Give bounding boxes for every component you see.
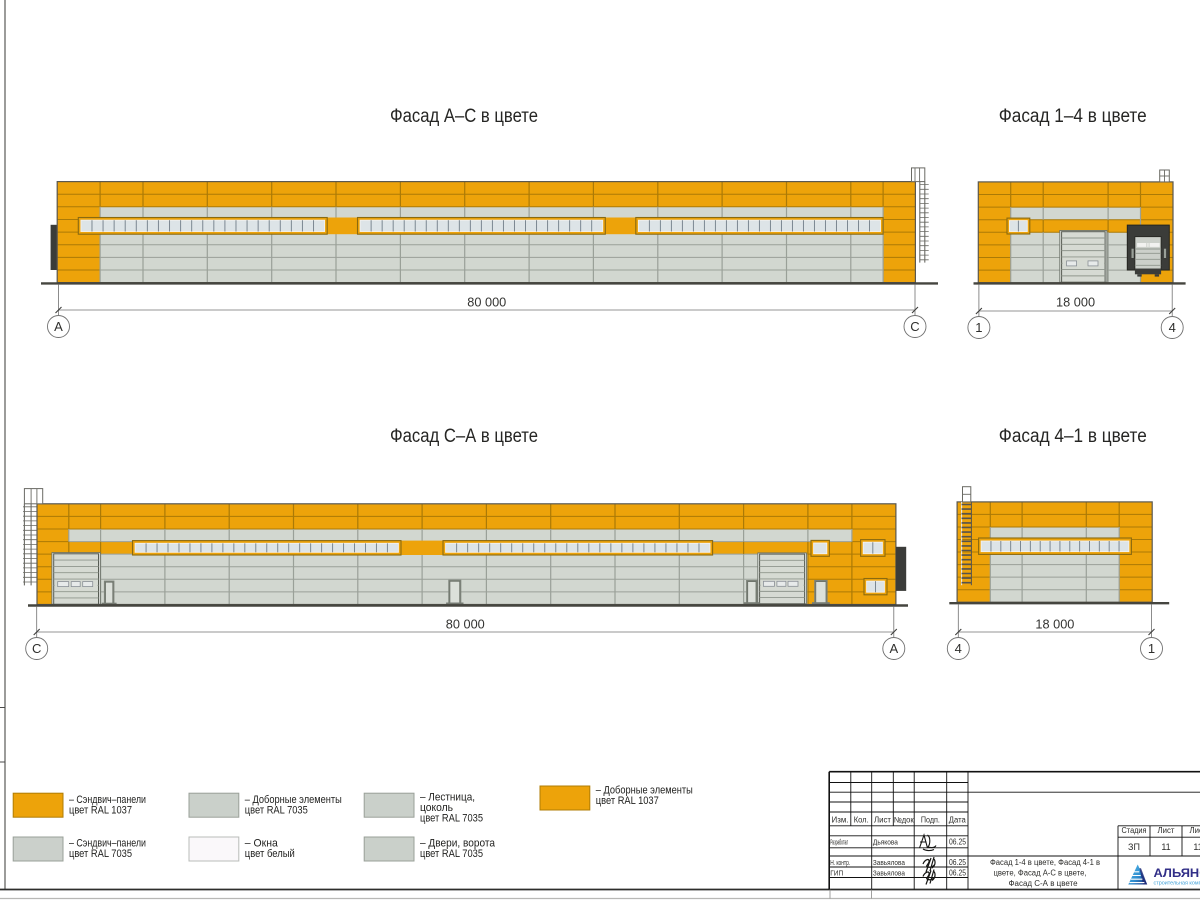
svg-text:АЛЬЯНС: АЛЬЯНС bbox=[1154, 866, 1200, 880]
svg-text:цвет RAL 7035: цвет RAL 7035 bbox=[69, 848, 132, 860]
svg-text:Завьялова: Завьялова bbox=[873, 869, 906, 878]
svg-text:Кол.: Кол. bbox=[854, 816, 869, 825]
svg-text:Изм.: Изм. bbox=[832, 816, 849, 825]
svg-text:цвет RAL 7035: цвет RAL 7035 bbox=[420, 848, 483, 860]
svg-text:11: 11 bbox=[1193, 842, 1200, 852]
svg-text:№док: №док bbox=[894, 816, 914, 825]
svg-text:ГИП: ГИП bbox=[830, 869, 843, 878]
svg-text:Н. контр.: Н. контр. bbox=[830, 858, 850, 867]
svg-text:Фасад С–А в цвете: Фасад С–А в цвете bbox=[390, 426, 538, 447]
svg-text:Дьякова: Дьякова bbox=[873, 838, 899, 847]
svg-text:1: 1 bbox=[975, 320, 982, 335]
svg-text:Фасад С-А в цвете: Фасад С-А в цвете bbox=[1009, 879, 1079, 888]
svg-text:Лист: Лист bbox=[1158, 826, 1175, 835]
svg-text:цвет белый: цвет белый bbox=[245, 848, 295, 860]
svg-text:Фасад 4–1 в цвете: Фасад 4–1 в цвете bbox=[999, 426, 1147, 447]
svg-text:А: А bbox=[54, 319, 63, 334]
svg-text:11: 11 bbox=[1161, 842, 1170, 852]
svg-text:Завьялова: Завьялова bbox=[873, 858, 906, 867]
svg-text:Фасад 1–4 в цвете: Фасад 1–4 в цвете bbox=[999, 106, 1147, 127]
svg-text:80 000: 80 000 bbox=[467, 296, 506, 310]
svg-text:ЗП: ЗП bbox=[1128, 842, 1140, 852]
svg-text:Фасад 1-4 в цвете, Фасад 4-1 в: Фасад 1-4 в цвете, Фасад 4-1 в bbox=[990, 858, 1100, 867]
svg-text:цвет RAL 1037: цвет RAL 1037 bbox=[596, 795, 659, 807]
svg-text:4: 4 bbox=[955, 641, 962, 656]
svg-text:06.25: 06.25 bbox=[949, 838, 966, 847]
svg-text:Стадия: Стадия bbox=[1122, 826, 1147, 835]
svg-text:Дата: Дата bbox=[949, 816, 967, 825]
svg-text:Подп.: Подп. bbox=[921, 816, 940, 825]
svg-text:С: С bbox=[910, 319, 919, 334]
svg-text:18 000: 18 000 bbox=[1035, 618, 1074, 632]
svg-text:Разработал: Разработал bbox=[830, 838, 848, 847]
svg-text:Фасад А–С в цвете: Фасад А–С в цвете bbox=[390, 106, 538, 127]
svg-text:цвете, Фасад А-С в цвете,: цвете, Фасад А-С в цвете, bbox=[994, 869, 1087, 878]
svg-text:С: С bbox=[32, 641, 41, 656]
svg-text:цвет RAL 1037: цвет RAL 1037 bbox=[69, 804, 132, 816]
svg-text:18 000: 18 000 bbox=[1056, 296, 1095, 310]
svg-text:1: 1 bbox=[1148, 641, 1155, 656]
svg-text:06.25: 06.25 bbox=[949, 858, 966, 867]
svg-text:80 000: 80 000 bbox=[446, 618, 485, 632]
svg-text:строительная компания: строительная компания bbox=[1154, 881, 1200, 887]
svg-text:Лист: Лист bbox=[874, 816, 891, 825]
svg-text:А: А bbox=[889, 641, 898, 656]
svg-text:Лист: Лист bbox=[1190, 826, 1200, 835]
svg-text:цвет RAL 7035: цвет RAL 7035 bbox=[245, 804, 308, 816]
svg-text:4: 4 bbox=[1169, 320, 1176, 335]
svg-text:06.25: 06.25 bbox=[949, 869, 966, 878]
svg-text:цвет RAL 7035: цвет RAL 7035 bbox=[420, 812, 483, 824]
